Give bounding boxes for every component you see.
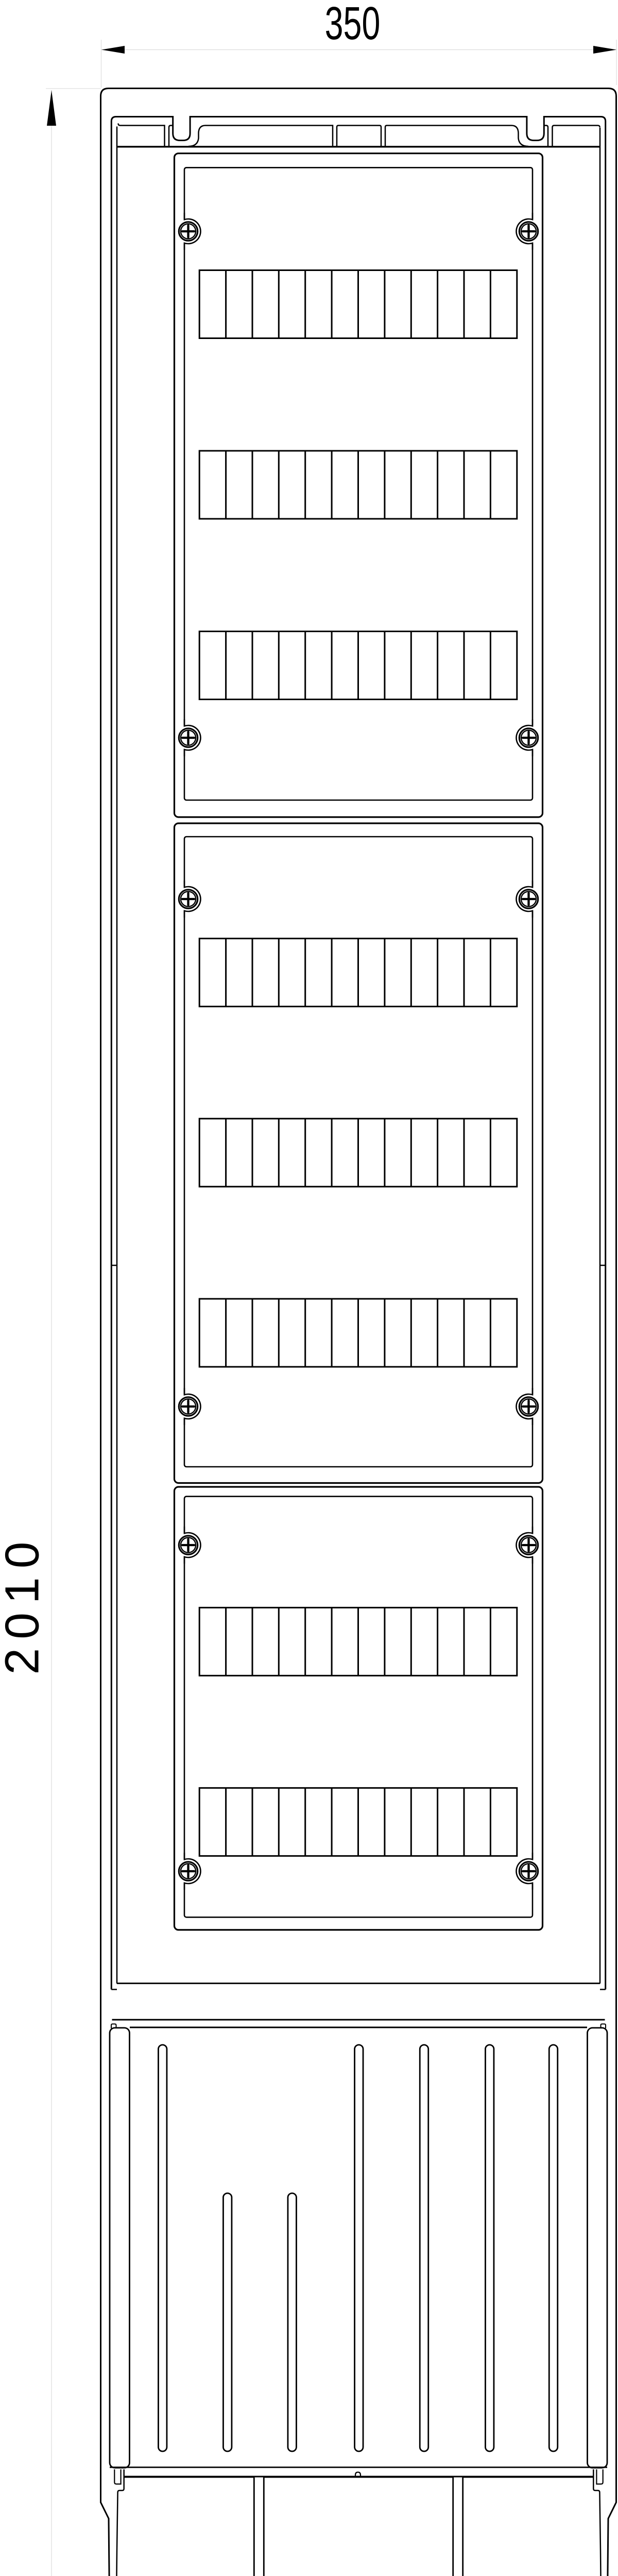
svg-text:2010: 2010 <box>0 1533 48 1675</box>
svg-text:350: 350 <box>325 0 381 49</box>
